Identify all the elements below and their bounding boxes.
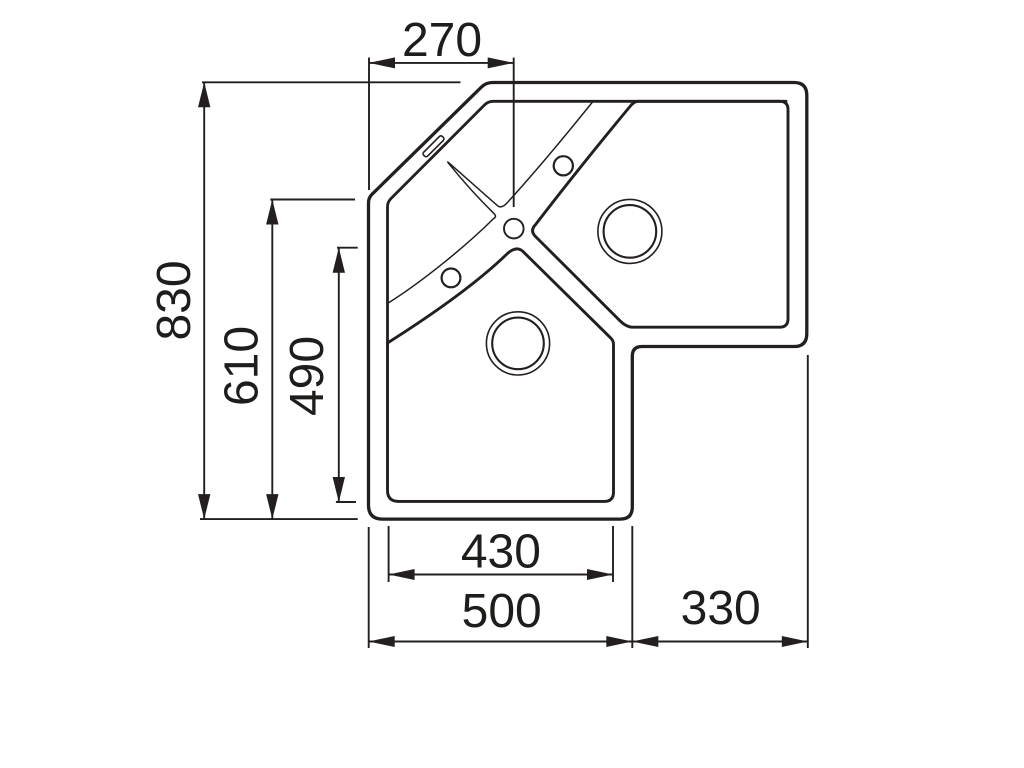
- svg-text:610: 610: [216, 326, 269, 406]
- svg-text:490: 490: [281, 336, 334, 416]
- svg-text:430: 430: [461, 525, 541, 578]
- svg-text:270: 270: [402, 14, 482, 67]
- svg-text:330: 330: [681, 582, 761, 635]
- svg-text:830: 830: [148, 260, 201, 340]
- svg-text:500: 500: [462, 585, 542, 638]
